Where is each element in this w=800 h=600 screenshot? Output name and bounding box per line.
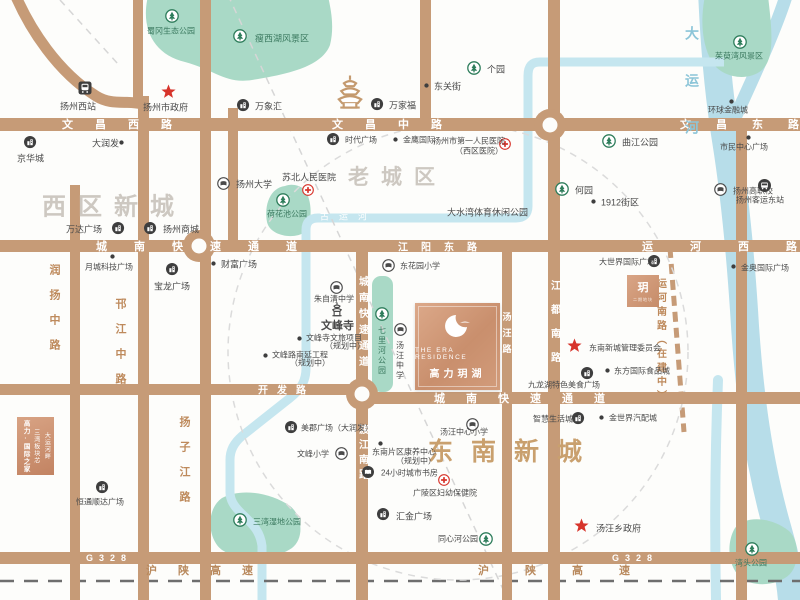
tree-icon	[233, 29, 247, 43]
tree-icon	[375, 307, 389, 321]
poi-label: 曲江公园	[622, 136, 658, 149]
poi-label: 京华城	[17, 152, 44, 165]
road-label: 汤汪路	[501, 312, 514, 360]
star-icon	[567, 338, 582, 353]
sister-plot-subtext: 二期地块	[633, 297, 653, 303]
dot-icon	[378, 441, 383, 446]
logo-inner-border	[418, 306, 497, 387]
poi-label: 文峰小学	[297, 449, 329, 460]
star-icon	[161, 84, 176, 99]
dot-icon	[729, 99, 734, 104]
road	[228, 108, 238, 244]
star-icon	[574, 518, 589, 533]
poi-label: 扬州大学	[236, 178, 272, 191]
poi-label: 荷花池公园	[267, 209, 307, 220]
tree-icon	[467, 61, 481, 75]
poi-label: 东方国际食品城	[614, 366, 670, 377]
poi-label: 汇金广场	[396, 510, 432, 523]
roundabout	[534, 109, 566, 141]
book-icon	[362, 466, 374, 478]
poi-label: 扬州商城	[163, 223, 199, 236]
road-label: 江阳东路	[398, 239, 490, 254]
poi-label: 七里河公园	[377, 326, 388, 376]
cross-icon	[438, 474, 450, 486]
poi-label: 何园	[575, 184, 593, 197]
pagoda2-icon	[329, 302, 345, 318]
mall-icon	[572, 412, 585, 425]
poi-label: 万家福	[389, 99, 416, 112]
poi-label: 时代广场	[345, 135, 377, 146]
promo-col-1: 大运河畔	[43, 432, 49, 460]
poi-label: 大世界国际广场	[599, 257, 655, 268]
road	[502, 240, 512, 600]
road-label: 运河西路	[642, 238, 800, 254]
mall-icon	[581, 367, 594, 380]
mall-icon	[285, 421, 298, 434]
road	[138, 96, 149, 600]
poi-label: 金鹰国际	[403, 135, 435, 146]
dot-icon	[297, 336, 302, 341]
poi-label: 金奥国际广场	[741, 263, 789, 274]
poi-label: （规划中）	[396, 456, 436, 467]
promo-text-box: 大运河畔 三湾板块芯 高力·国际之家	[17, 417, 54, 475]
dot-icon	[263, 353, 268, 358]
poi-label: 汤汪乡政府	[596, 522, 641, 535]
poi-label: 大润发	[92, 137, 119, 150]
poi-label: 财富广场	[221, 258, 257, 271]
poi-label: （规划中）	[290, 358, 330, 369]
dot-icon	[591, 199, 596, 204]
school-icon	[217, 177, 230, 190]
poi-label: 蜀冈生态公园	[147, 26, 195, 37]
dot-icon	[119, 140, 124, 145]
poi-label: 东关街	[434, 80, 461, 93]
tree-icon	[745, 542, 759, 556]
school-icon	[330, 281, 343, 294]
mall-icon	[166, 263, 179, 276]
dot-icon	[110, 254, 115, 259]
road-label: 邗江中路	[112, 298, 128, 398]
school-icon	[382, 259, 395, 272]
mall-icon	[327, 133, 340, 146]
road-label: 城南快速通道	[96, 238, 324, 254]
tree-icon	[165, 9, 179, 23]
train-icon	[78, 81, 92, 95]
mall-icon	[112, 222, 125, 235]
poi-label: 宝龙广场	[154, 280, 190, 293]
poi-label: 大水湾体育休闲公园	[447, 206, 528, 219]
poi-label: （西区医院）	[455, 146, 503, 157]
mall-icon	[96, 481, 109, 494]
dot-icon	[211, 261, 216, 266]
road	[200, 0, 211, 600]
poi-label: 茱萸湾风景区	[715, 51, 763, 62]
road-label: 沪陕高速	[478, 562, 666, 578]
sister-plot-card: 玥 二期地块	[627, 275, 659, 307]
road-label: 沪陕高速	[146, 562, 274, 578]
mall-icon	[377, 508, 390, 521]
poi-label: 文峰寺	[321, 317, 354, 333]
road-label: 大运河	[682, 26, 702, 167]
poi-label: 环球金融城	[708, 105, 748, 116]
mall-icon	[24, 136, 37, 149]
poi-label: （规划中）	[325, 341, 365, 352]
tree-icon	[233, 513, 247, 527]
poi-label: 东花园小学	[400, 261, 440, 272]
poi-label: 个园	[487, 63, 505, 76]
roundabout-center	[355, 387, 370, 402]
promo-col-3: 高力·国际之家	[22, 420, 29, 473]
roundabout-center	[543, 118, 558, 133]
road-label: 润扬中路	[46, 264, 62, 364]
poi-label: 汤汪中学	[395, 341, 406, 381]
sister-plot-glyph: 玥	[638, 279, 649, 295]
poi-label: 美郡广场（大润发）	[301, 423, 373, 434]
road-label: 扬子江路	[176, 416, 192, 516]
road	[133, 0, 143, 100]
mall-icon	[144, 222, 157, 235]
poi-label: 月城科技广场	[85, 262, 133, 273]
location-map: THE ERA RESIDENCE 高力玥湖 玥 二期地块 大运河畔 三湾板块芯…	[0, 0, 800, 600]
school-icon	[335, 447, 348, 460]
tree-icon	[276, 193, 290, 207]
poi-label: 湾头公园	[735, 558, 767, 569]
school-icon	[714, 183, 727, 196]
roundabout	[346, 378, 378, 410]
road-label: 古运河	[320, 210, 377, 223]
poi-label: 万达广场	[66, 223, 102, 236]
district-label: 老城区	[348, 161, 447, 191]
dot-icon	[731, 264, 736, 269]
tree-icon	[555, 182, 569, 196]
tree-icon	[602, 134, 616, 148]
dot-icon	[424, 83, 429, 88]
road	[70, 185, 80, 600]
dot-icon	[746, 135, 751, 140]
poi-label: 智慧生活城	[533, 414, 573, 425]
bus-icon	[758, 179, 771, 192]
poi-label: 苏北人民医院	[282, 171, 336, 184]
road	[420, 0, 431, 118]
road-label: 江都南路	[547, 280, 562, 376]
poi-label: 汤汪中心小学	[440, 427, 488, 438]
poi-label: 广陵区妇幼保健院	[413, 488, 477, 499]
road-label: 文昌中路	[332, 116, 464, 132]
road-label: G328	[86, 553, 132, 563]
poi-label: 24小时城市书房	[381, 468, 438, 479]
project-logo-card: THE ERA RESIDENCE 高力玥湖	[415, 303, 500, 390]
poi-label: 恒通顺达广场	[76, 497, 124, 508]
road-label: 文昌西路	[62, 116, 194, 132]
poi-label: 1912街区	[601, 196, 639, 209]
poi-label: 扬州客运东站	[736, 195, 784, 206]
dot-icon	[599, 415, 604, 420]
mall-icon	[371, 98, 384, 111]
road-label: 城南快速通道	[434, 390, 626, 406]
school-icon	[394, 323, 407, 336]
dot-icon	[393, 137, 398, 142]
poi-label: 东南新城管理委员会	[589, 343, 661, 354]
poi-label: 市民中心广场	[720, 142, 768, 153]
tree-icon	[733, 35, 747, 49]
poi-label: 九龙湖特色美食广场	[528, 380, 600, 391]
poi-label: 万象汇	[255, 100, 282, 113]
pagoda-icon	[333, 75, 367, 109]
poi-label: 瘦西湖风景区	[255, 32, 309, 45]
cross-icon	[302, 184, 314, 196]
tree-icon	[479, 532, 493, 546]
poi-label: 三湾湿地公园	[253, 517, 301, 528]
poi-label: 扬州西站	[60, 100, 96, 113]
dot-icon	[605, 368, 610, 373]
district-label: 西区新城	[42, 187, 186, 222]
poi-label: 同心河公园	[438, 534, 478, 545]
mall-icon	[237, 99, 250, 112]
poi-label: 金世界汽配城	[609, 413, 657, 424]
poi-label: 扬州市政府	[143, 101, 188, 114]
road-label: 城南快速通道	[355, 276, 370, 372]
road-label: 开发路	[258, 382, 315, 397]
promo-col-2: 三湾板块芯	[33, 429, 39, 464]
